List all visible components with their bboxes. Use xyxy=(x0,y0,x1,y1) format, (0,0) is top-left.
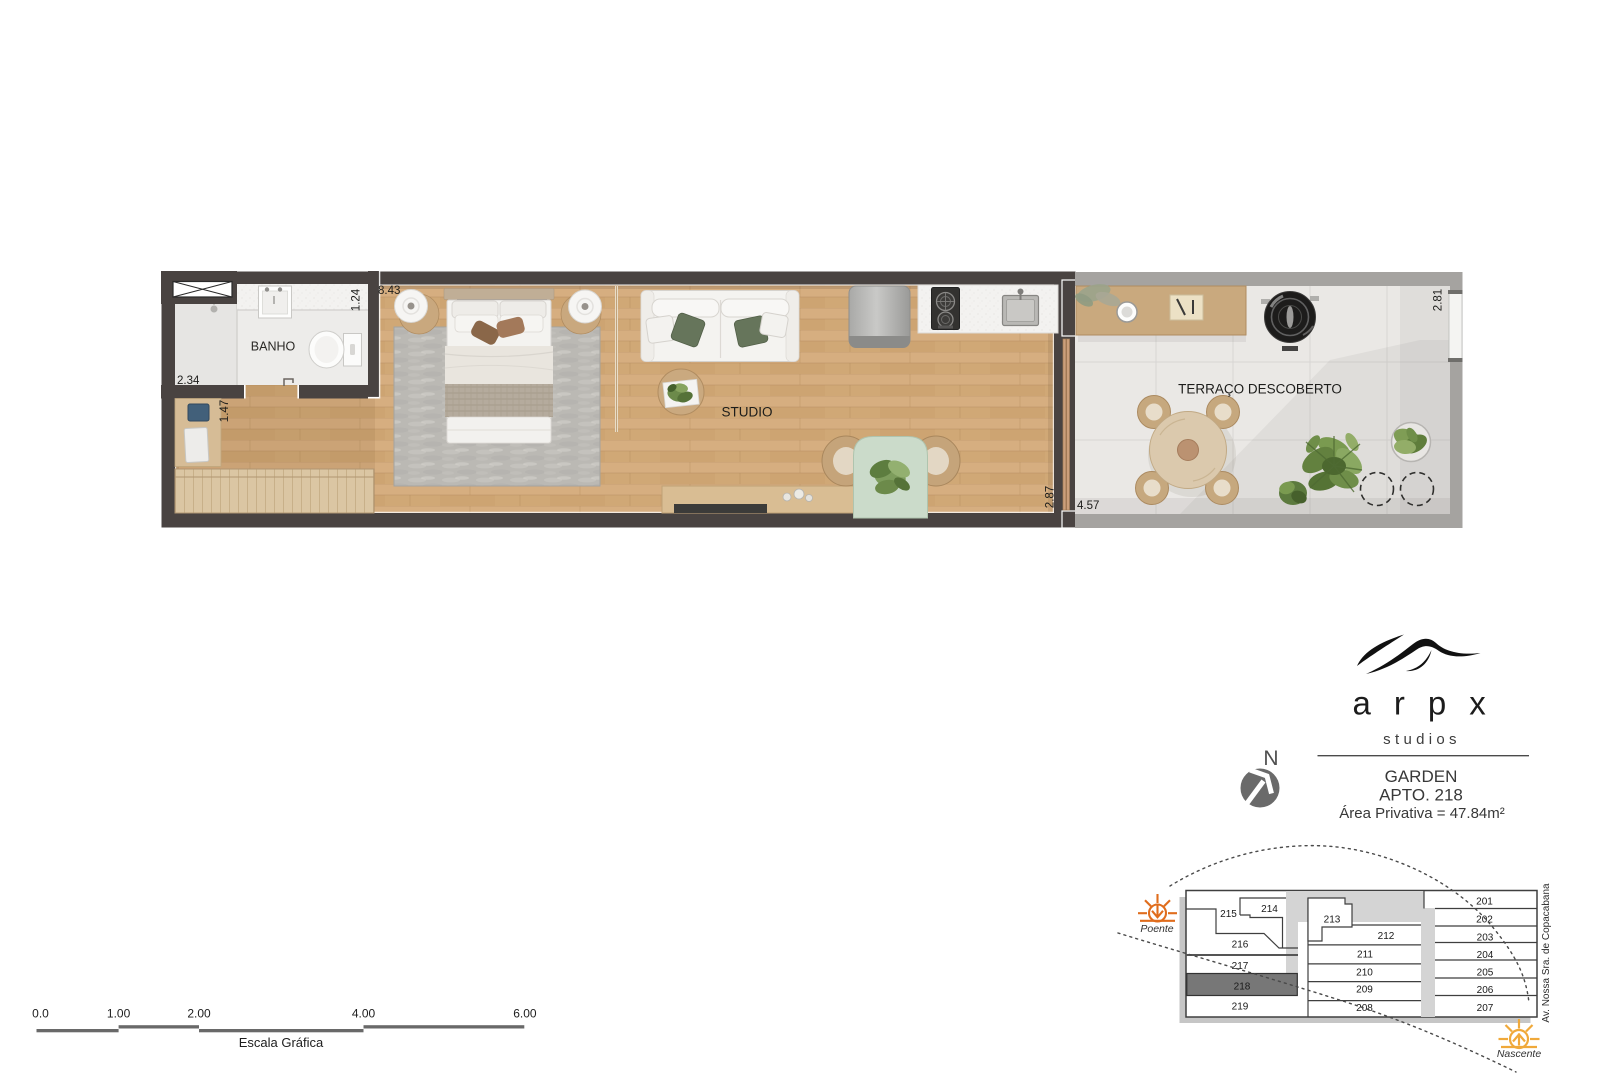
svg-text:2.34: 2.34 xyxy=(177,375,200,387)
svg-text:1.47: 1.47 xyxy=(219,400,231,422)
svg-text:215: 215 xyxy=(1220,909,1237,920)
svg-text:207: 207 xyxy=(1477,1003,1494,1014)
svg-text:2.81: 2.81 xyxy=(1433,289,1445,311)
svg-text:219: 219 xyxy=(1232,1002,1249,1013)
svg-text:Escala Gráfica: Escala Gráfica xyxy=(239,1035,324,1050)
svg-text:217: 217 xyxy=(1232,961,1249,972)
svg-text:202: 202 xyxy=(1476,915,1493,926)
svg-text:204: 204 xyxy=(1477,950,1494,961)
svg-text:205: 205 xyxy=(1477,968,1494,979)
svg-text:0.0: 0.0 xyxy=(32,1006,49,1020)
svg-text:TERRAÇO DESCOBERTO: TERRAÇO DESCOBERTO xyxy=(1178,382,1342,397)
svg-text:Poente: Poente xyxy=(1140,923,1173,935)
svg-text:212: 212 xyxy=(1378,931,1395,942)
svg-text:206: 206 xyxy=(1477,985,1494,996)
svg-text:1.24: 1.24 xyxy=(351,288,363,311)
svg-text:214: 214 xyxy=(1261,904,1278,915)
svg-text:APTO. 218: APTO. 218 xyxy=(1379,786,1463,805)
svg-text:Nascente: Nascente xyxy=(1497,1048,1542,1060)
svg-text:4.57: 4.57 xyxy=(1077,500,1099,512)
svg-text:STUDIO: STUDIO xyxy=(721,405,772,420)
svg-text:1.00: 1.00 xyxy=(107,1006,131,1020)
svg-text:BANHO: BANHO xyxy=(251,340,296,354)
svg-text:8.43: 8.43 xyxy=(378,285,400,297)
svg-text:GARDEN: GARDEN xyxy=(1385,767,1458,786)
svg-text:213: 213 xyxy=(1324,915,1341,926)
svg-text:Área Privativa = 47.84m²: Área Privativa = 47.84m² xyxy=(1339,805,1505,822)
svg-text:6.00: 6.00 xyxy=(513,1006,537,1020)
svg-text:211: 211 xyxy=(1357,950,1373,961)
svg-text:2.87: 2.87 xyxy=(1045,486,1057,508)
svg-text:203: 203 xyxy=(1477,933,1494,944)
svg-text:4.00: 4.00 xyxy=(352,1006,376,1020)
svg-text:N: N xyxy=(1263,747,1278,770)
svg-text:201: 201 xyxy=(1476,897,1493,908)
svg-text:210: 210 xyxy=(1356,968,1373,979)
svg-text:studios: studios xyxy=(1383,731,1461,748)
svg-text:2.00: 2.00 xyxy=(187,1006,211,1020)
svg-text:Av. Nossa Sra. de Copacabana: Av. Nossa Sra. de Copacabana xyxy=(1541,883,1552,1023)
svg-text:208: 208 xyxy=(1356,1003,1373,1014)
svg-text:216: 216 xyxy=(1232,940,1249,951)
svg-text:218: 218 xyxy=(1234,982,1251,993)
svg-text:209: 209 xyxy=(1356,985,1373,996)
svg-text:arpx: arpx xyxy=(1353,685,1509,722)
